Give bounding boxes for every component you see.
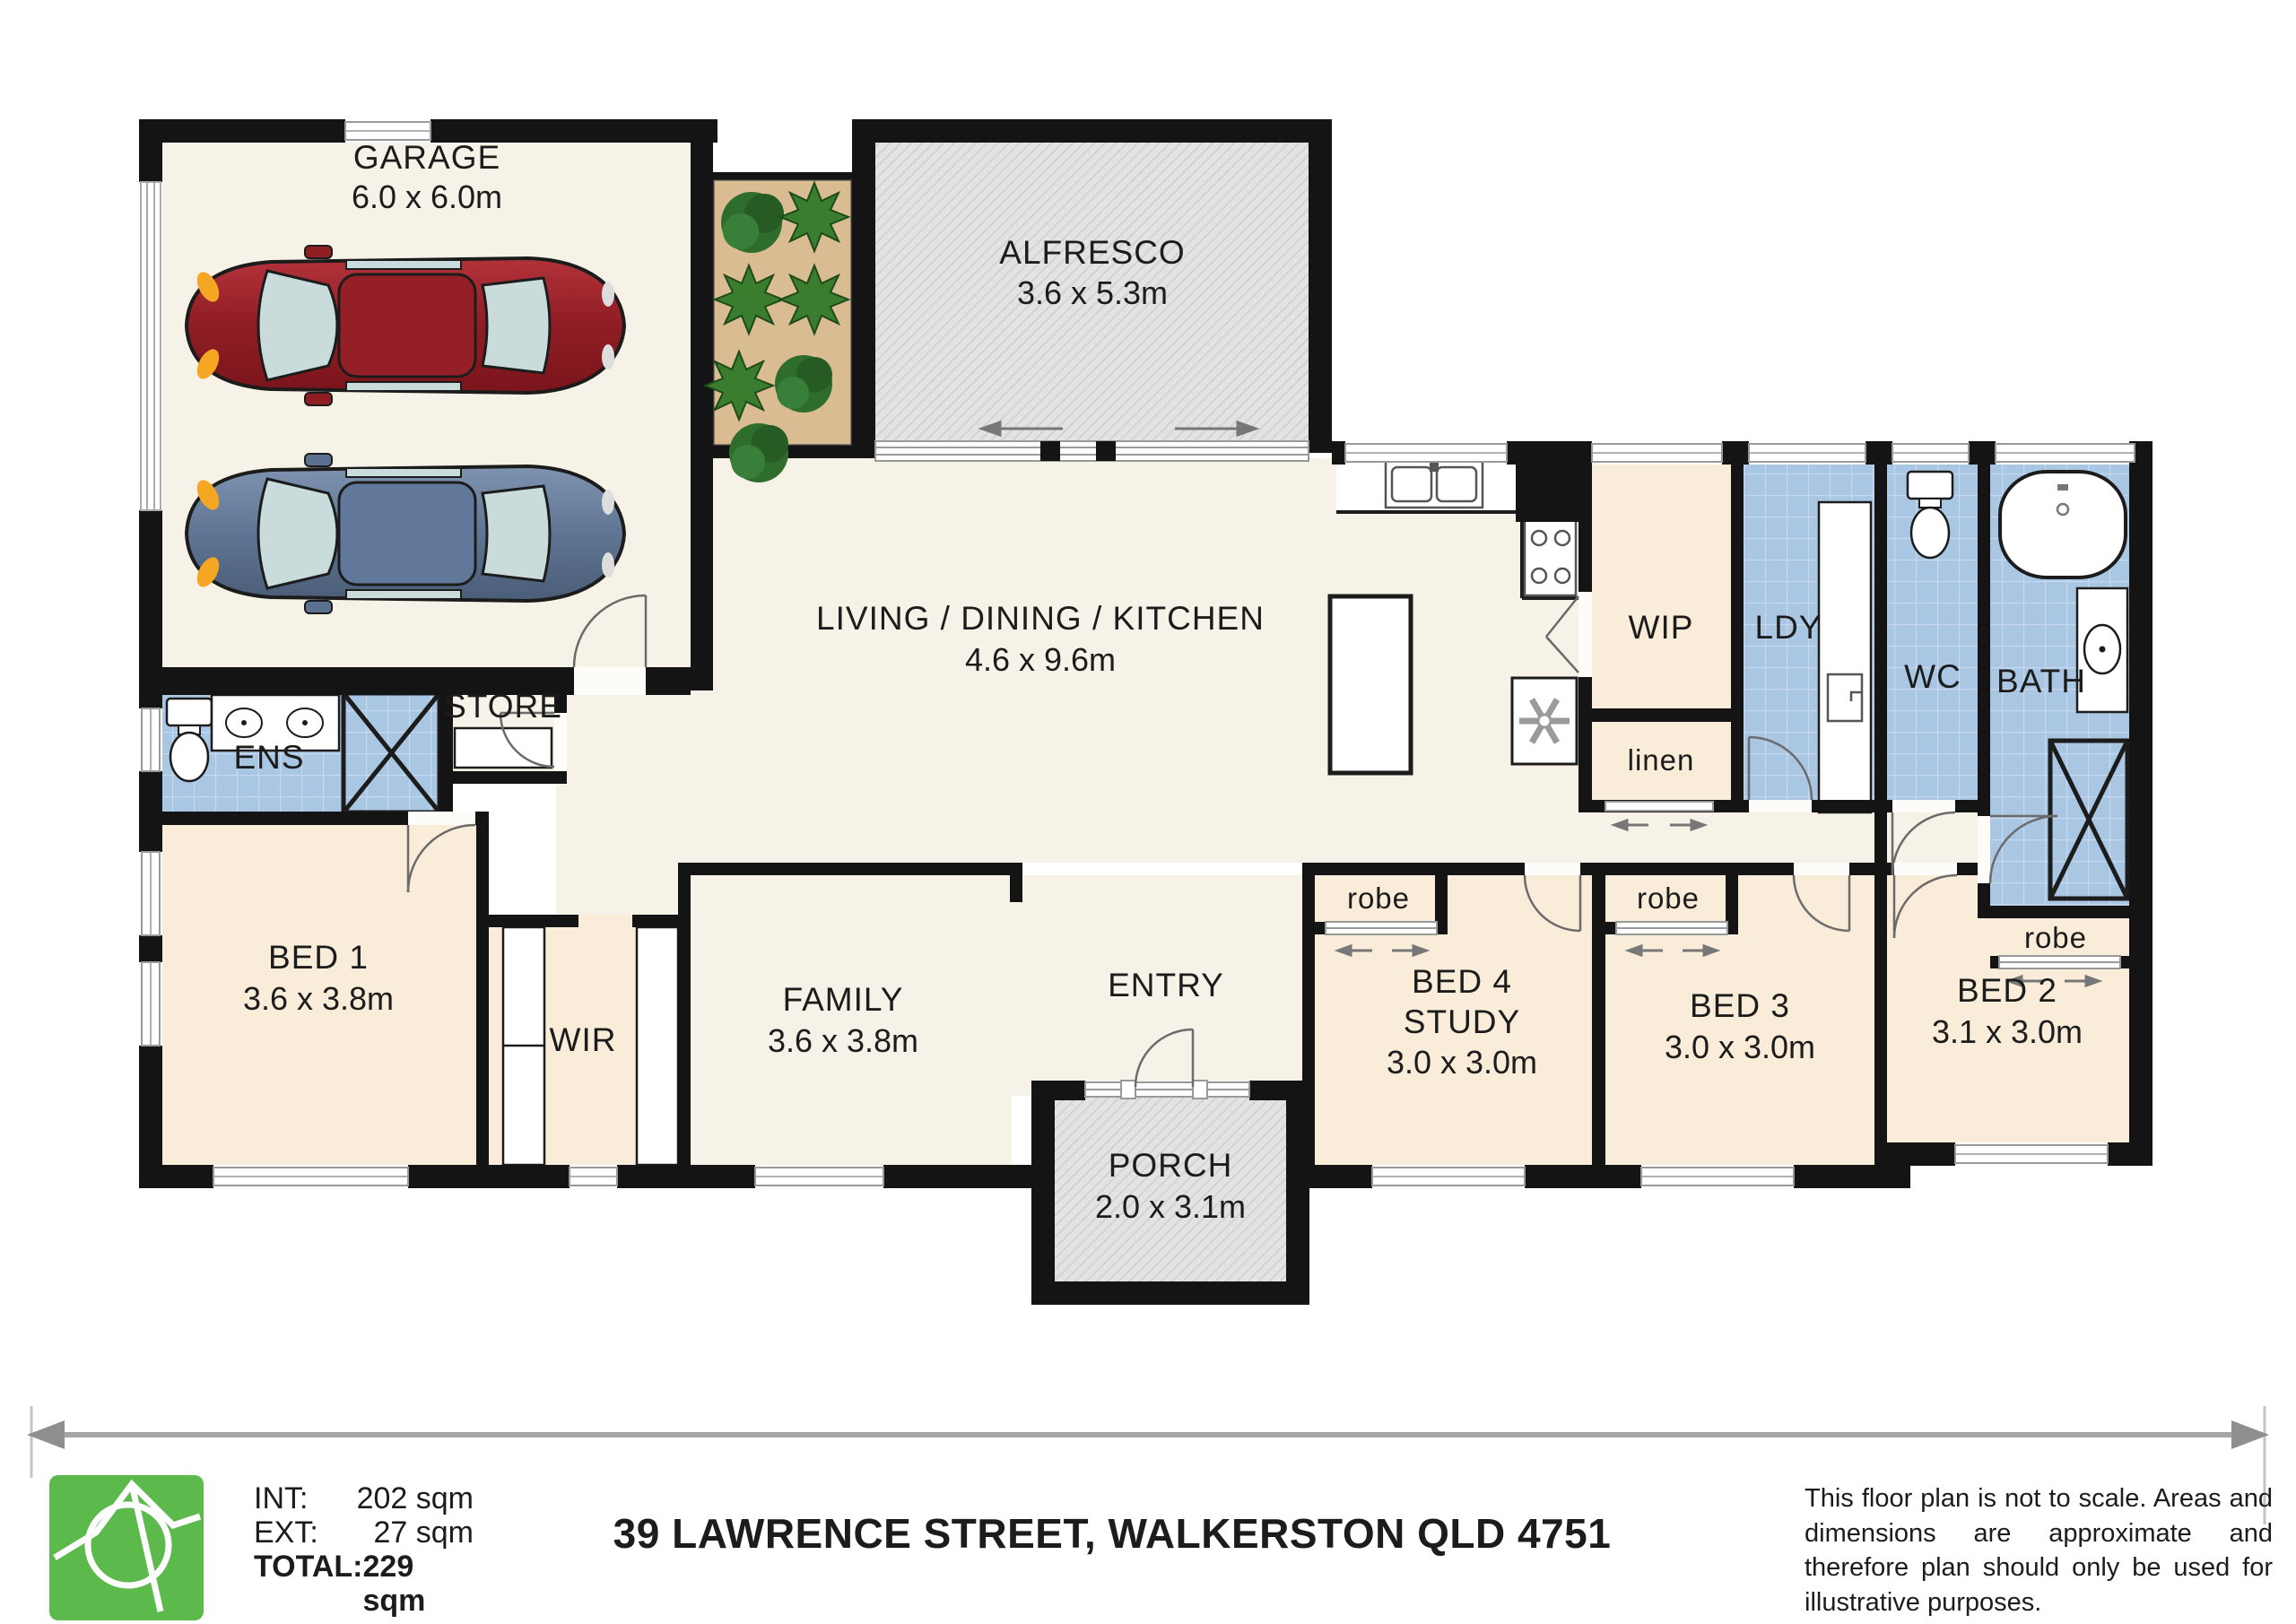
ens-label: ENS — [233, 739, 304, 777]
kitchen-island — [1330, 596, 1411, 773]
bed1-dims: 3.6 x 3.8m — [243, 980, 394, 1018]
wip-label: WIP — [1629, 609, 1694, 647]
area-row-total: TOTAL: 229 sqm — [254, 1550, 474, 1618]
compass-logo-icon — [49, 1475, 204, 1620]
laundry-bench — [1819, 502, 1871, 812]
shower-icon — [2050, 741, 2127, 899]
porch-dims: 2.0 x 3.1m — [1095, 1188, 1246, 1226]
bush-plant-icon — [729, 423, 788, 482]
garage-label: GARAGE — [353, 139, 500, 177]
area-row-ext: EXT: 27 sqm — [254, 1515, 474, 1550]
store-label: STORE — [444, 688, 562, 725]
family-dims: 3.6 x 3.8m — [768, 1022, 918, 1060]
fan-icon — [1512, 678, 1577, 764]
area-value: 229 sqm — [363, 1550, 474, 1618]
bed3-dims: 3.0 x 3.0m — [1665, 1029, 1815, 1066]
spiky-plant-icon — [705, 352, 773, 420]
area-label: INT: — [254, 1481, 308, 1515]
garage-dims: 6.0 x 6.0m — [352, 178, 502, 216]
store-shelf — [455, 728, 552, 768]
garage-door — [141, 182, 161, 510]
bath-label: BATH — [1996, 663, 2086, 700]
bed1-label: BED 1 — [268, 939, 369, 977]
entry-label: ENTRY — [1108, 967, 1224, 1004]
agency-logo — [49, 1475, 204, 1620]
living-floor — [713, 458, 1578, 863]
ens-shower-icon — [344, 693, 439, 812]
living-dims: 4.6 x 9.6m — [965, 641, 1116, 679]
red-car-icon — [187, 246, 624, 405]
bed2-label: BED 2 — [1957, 972, 2057, 1010]
hallway-floor — [1578, 812, 1978, 863]
area-summary: INT: 202 sqm EXT: 27 sqm TOTAL: 229 sqm — [254, 1481, 474, 1618]
hall-floor — [556, 695, 691, 915]
blue-car-icon — [187, 454, 624, 613]
area-label: EXT: — [254, 1515, 318, 1550]
area-value: 202 sqm — [357, 1481, 474, 1515]
bed4-label2: STUDY — [1404, 1003, 1520, 1041]
porch-label: PORCH — [1109, 1147, 1233, 1185]
bed3-label: BED 3 — [1690, 987, 1790, 1025]
spiky-plant-icon — [780, 183, 848, 251]
bed3-robe-label: robe — [1637, 881, 1700, 916]
property-address: 39 LAWRENCE STREET, WALKERSTON QLD 4751 — [613, 1509, 1612, 1558]
wir-label: WIR — [550, 1021, 617, 1059]
alfresco-slider — [875, 441, 1309, 461]
wc-label: WC — [1904, 658, 1961, 696]
floorplan-page: GARAGE 6.0 x 6.0m ALFRESCO 3.6 x 5.3m LI… — [0, 0, 2296, 1624]
bush-plant-icon — [775, 355, 832, 413]
area-label: TOTAL: — [254, 1550, 363, 1618]
family-floor — [691, 875, 1012, 1165]
bathtub-icon — [2000, 472, 2126, 578]
bed4-label: BED 4 — [1412, 963, 1512, 1001]
family-label: FAMILY — [783, 981, 904, 1019]
ldy-label: LDY — [1755, 609, 1822, 647]
spiky-plant-icon — [715, 265, 783, 334]
wip-floor — [1592, 465, 1731, 708]
area-row-int: INT: 202 sqm — [254, 1481, 474, 1515]
bed2-dims: 3.1 x 3.0m — [1932, 1013, 2083, 1051]
alfresco-dims: 3.6 x 5.3m — [1017, 274, 1168, 312]
linen-label: linen — [1628, 743, 1695, 777]
bed4-dims: 3.0 x 3.0m — [1387, 1044, 1537, 1081]
kitchen-sink-icon — [1386, 461, 1483, 508]
bed2-robe-label: robe — [2024, 921, 2087, 955]
alfresco-label: ALFRESCO — [999, 234, 1185, 272]
living-label: LIVING / DINING / KITCHEN — [816, 600, 1265, 638]
disclaimer-text: This floor plan is not to scale. Areas a… — [1805, 1481, 2273, 1620]
area-value: 27 sqm — [374, 1515, 474, 1550]
stove-icon — [1525, 520, 1576, 595]
bed4-robe-label: robe — [1347, 881, 1410, 916]
spiky-plant-icon — [780, 265, 848, 334]
